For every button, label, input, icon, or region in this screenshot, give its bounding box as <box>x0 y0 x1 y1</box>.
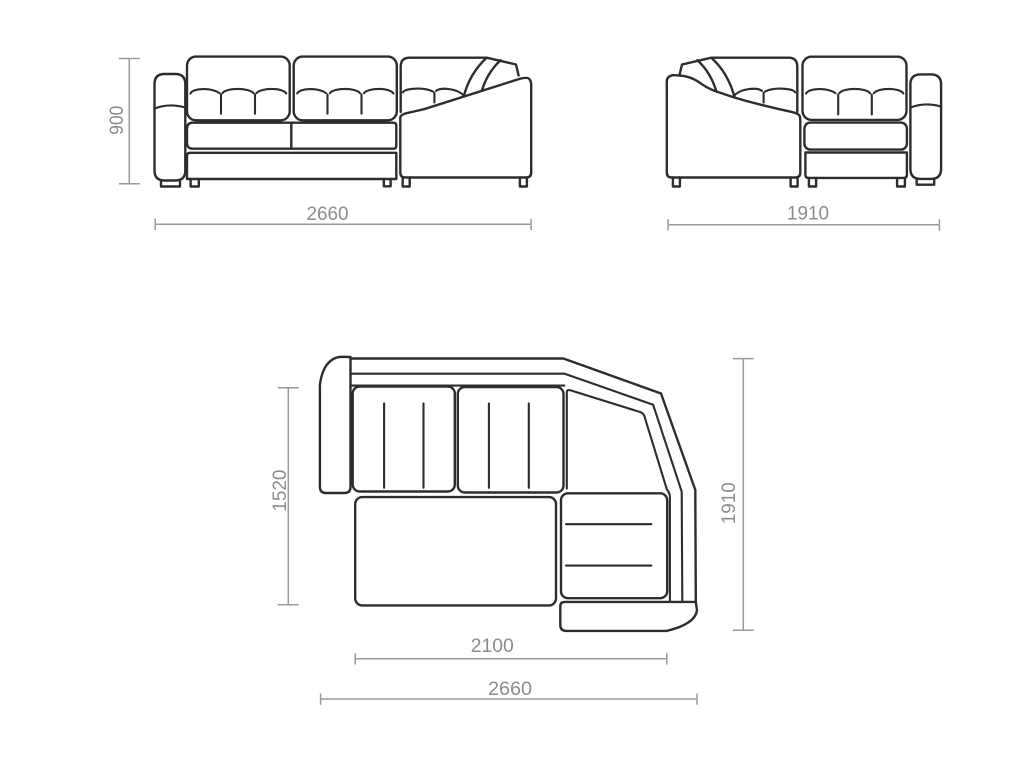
svg-text:2100: 2100 <box>471 635 514 657</box>
svg-text:1910: 1910 <box>718 482 740 524</box>
svg-text:2660: 2660 <box>307 203 349 225</box>
svg-text:2660: 2660 <box>488 678 532 700</box>
svg-text:1520: 1520 <box>269 469 291 511</box>
svg-text:1910: 1910 <box>787 203 829 225</box>
svg-text:900: 900 <box>106 106 128 135</box>
